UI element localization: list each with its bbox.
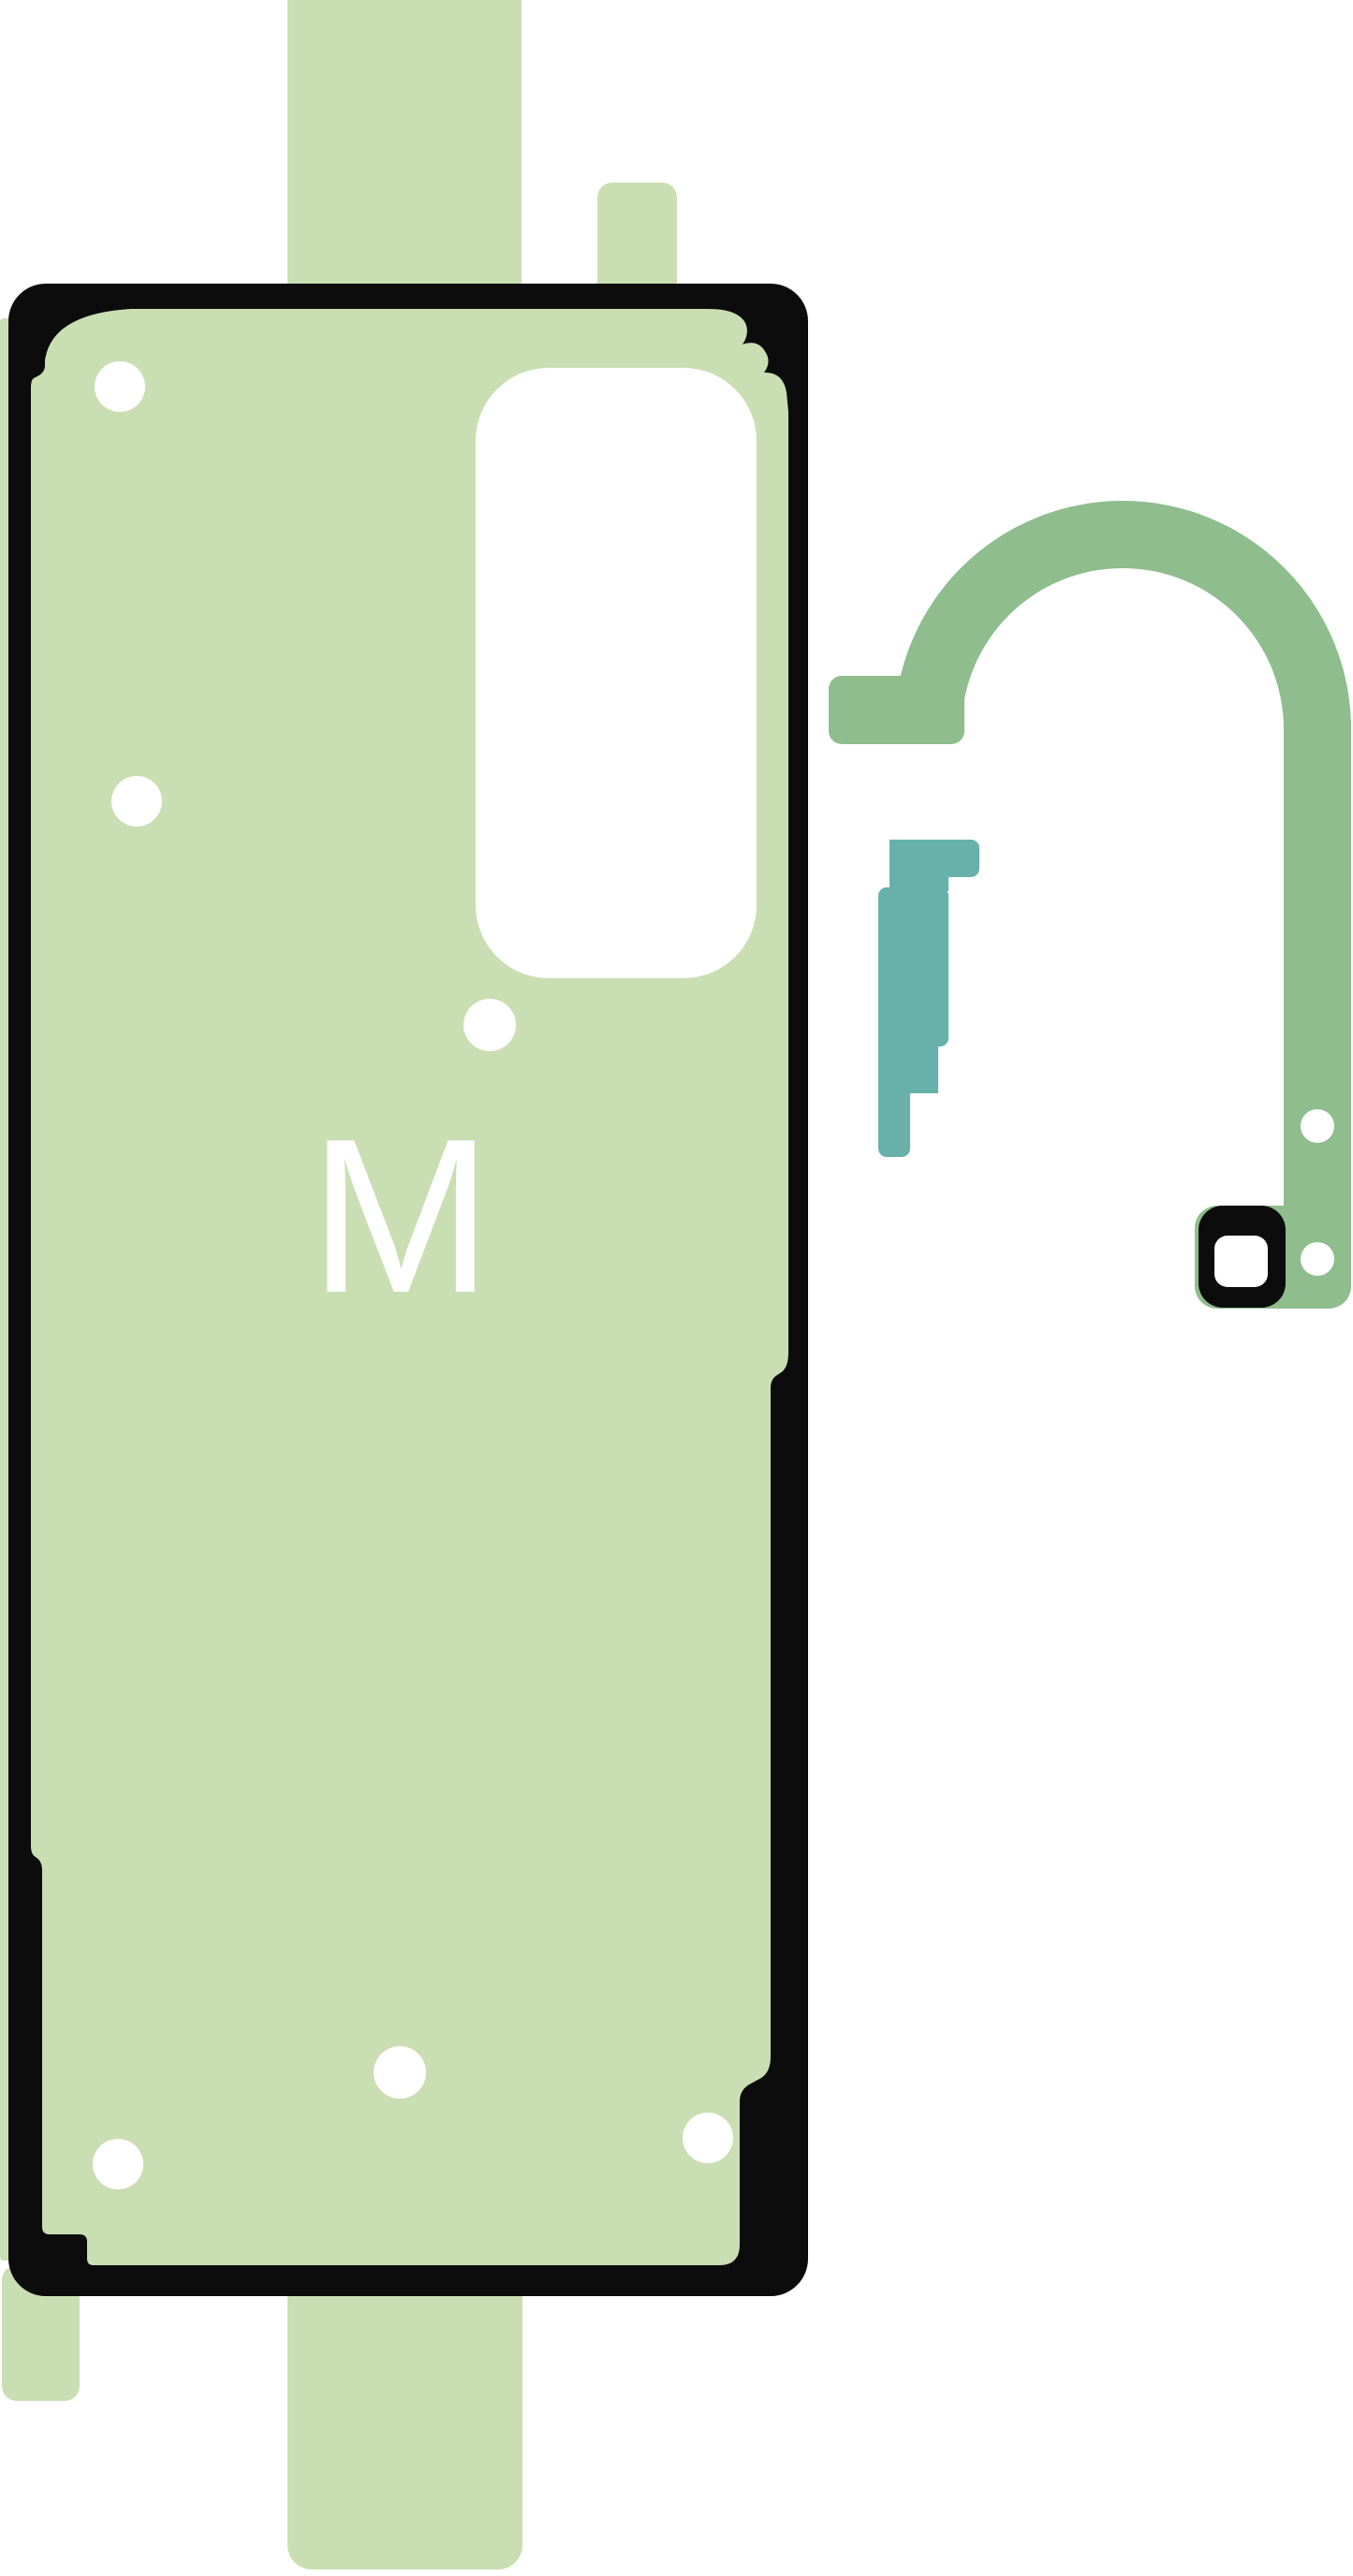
clip-neck — [890, 840, 949, 891]
sheet-letter-label: M — [309, 1092, 493, 1339]
hole-center — [463, 999, 516, 1051]
clip-step — [878, 1037, 938, 1093]
hole-bottom-left — [93, 2139, 143, 2189]
hook-right-band — [1284, 721, 1351, 1264]
clip-body — [878, 887, 949, 1046]
hole-mid-left — [111, 776, 162, 827]
hook-left-bar — [829, 676, 964, 744]
clip-adhesive-strip — [878, 840, 979, 1157]
hole-bottom-right — [683, 2113, 733, 2163]
backing-strip-top — [287, 0, 522, 309]
camera-lens-adhesive-window — [1214, 1236, 1268, 1287]
backing-strip-bottom — [287, 2265, 522, 2569]
clip-stem — [878, 1086, 910, 1157]
hook-hole-upper — [1301, 1109, 1334, 1143]
camera-block-cutout — [476, 368, 757, 978]
hole-bottom-center — [374, 2046, 426, 2099]
hole-top-left — [95, 361, 145, 412]
product-image-adhesive-kit: M — [0, 0, 1353, 2576]
rear-cover-adhesive-sheet: M — [8, 284, 808, 2296]
hook-hole-lower — [1301, 1242, 1334, 1276]
adhesive-kit-illustration: M — [0, 0, 1353, 2576]
